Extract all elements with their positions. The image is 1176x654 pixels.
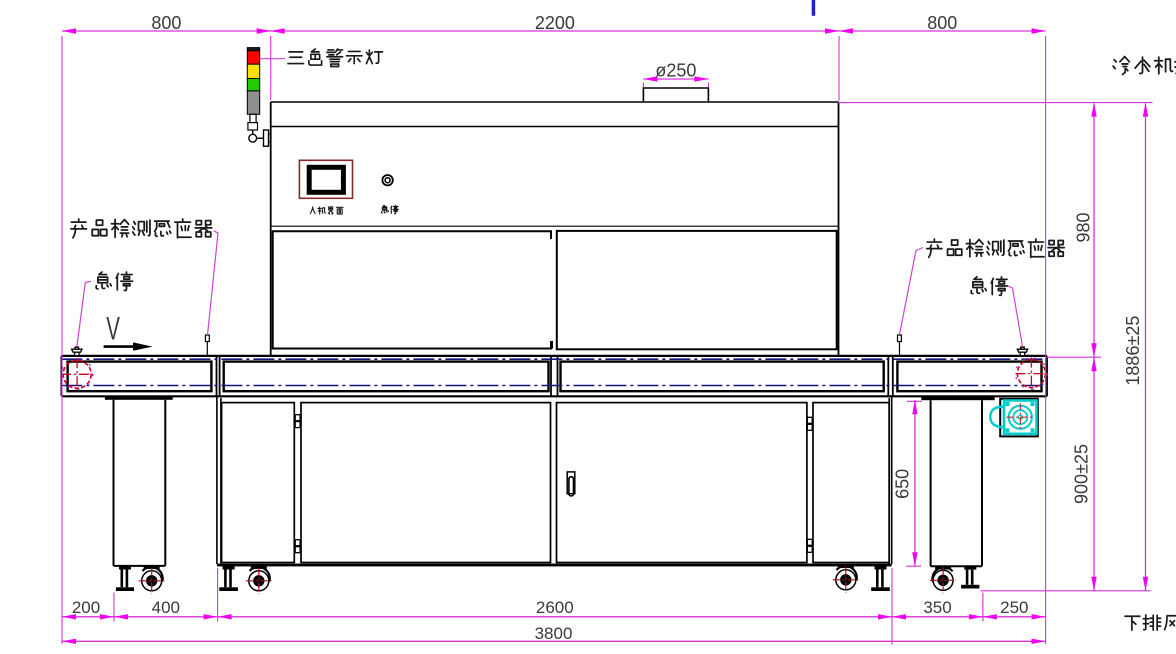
svg-text:400: 400 xyxy=(152,598,180,617)
svg-text:350: 350 xyxy=(923,598,951,617)
svg-text:800: 800 xyxy=(927,13,957,33)
svg-text:3800: 3800 xyxy=(535,624,573,643)
svg-text:1886±25: 1886±25 xyxy=(1123,316,1143,386)
svg-text:2600: 2600 xyxy=(536,598,574,617)
svg-text:ø250: ø250 xyxy=(655,61,696,81)
svg-text:V: V xyxy=(106,311,120,347)
svg-text:800: 800 xyxy=(151,13,181,33)
svg-text:650: 650 xyxy=(893,469,913,499)
svg-text:250: 250 xyxy=(1000,598,1028,617)
svg-text:980: 980 xyxy=(1074,212,1094,242)
svg-text:200: 200 xyxy=(72,598,100,617)
svg-text:900±25: 900±25 xyxy=(1072,444,1092,504)
svg-text:2200: 2200 xyxy=(535,13,575,33)
